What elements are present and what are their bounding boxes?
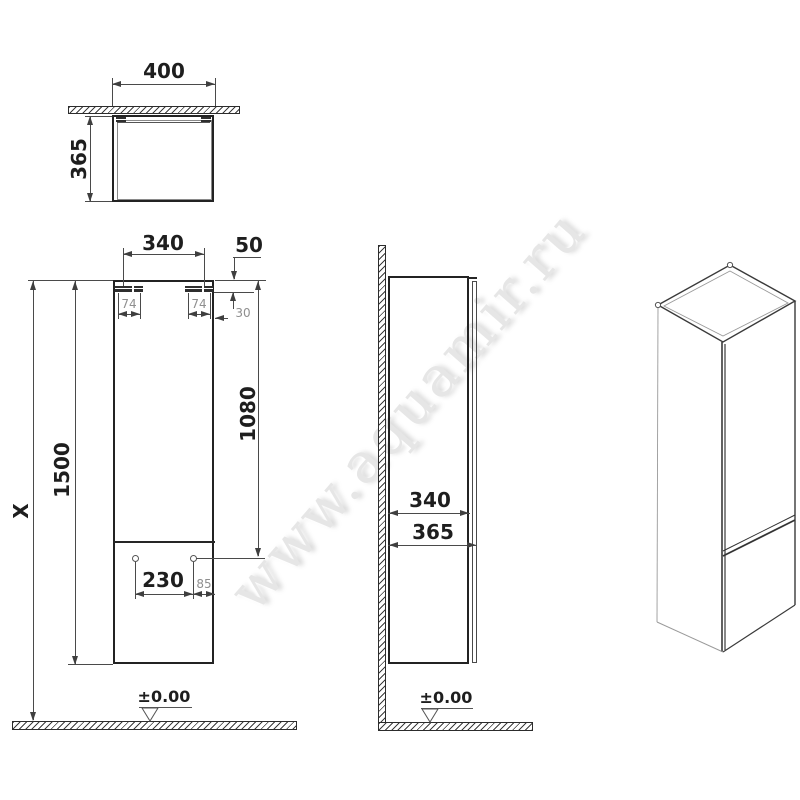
arrowhead [193, 591, 202, 597]
arrowhead [72, 281, 78, 290]
top-view-depth-label: 365 [69, 129, 89, 189]
door-divider [113, 541, 215, 543]
front-hanger-offset-label: 30 [223, 307, 263, 319]
door-panel [472, 281, 477, 663]
arrowhead [123, 251, 132, 257]
datum-triangle [141, 707, 159, 723]
dimension-line [112, 84, 215, 85]
cabinet-top-edge [467, 277, 477, 279]
extension-line [28, 280, 113, 281]
dimension-line [388, 545, 476, 546]
extension-line [215, 78, 216, 106]
arrowhead [87, 193, 93, 202]
arrowhead [184, 591, 193, 597]
arrowhead [467, 542, 476, 548]
arrowhead [188, 311, 197, 317]
arrowhead [30, 281, 36, 290]
front-holes-height-label: 1080 [238, 379, 258, 449]
mounting-bracket [185, 286, 202, 292]
technical-drawing: www.aquamir.ru 400 365 [0, 0, 800, 800]
iso-view [618, 248, 800, 668]
hanging-rail-line [117, 122, 210, 123]
extension-line [204, 248, 205, 286]
wall-hatch [68, 106, 240, 114]
arrowhead [131, 311, 140, 317]
arrowhead [389, 542, 398, 548]
cabinet-inner-line [117, 120, 212, 200]
drill-hole [132, 555, 139, 562]
side-floor-datum-label: ±0.00 [416, 690, 476, 706]
front-total-height-label: X [11, 491, 31, 531]
dimension-line [75, 281, 76, 664]
arrowhead [255, 281, 261, 290]
side-total-depth-label: 365 [403, 522, 463, 542]
arrowhead [206, 591, 215, 597]
front-floor-datum-label: ±0.00 [134, 689, 194, 705]
top-view-width-label: 400 [134, 61, 194, 81]
front-hanger-width-right-label: 74 [179, 298, 219, 310]
arrowhead [230, 292, 236, 301]
arrowhead [206, 81, 215, 87]
front-hanger-span-label: 340 [133, 233, 193, 253]
dimension-line [388, 513, 470, 514]
arrowhead [72, 656, 78, 665]
side-body-depth-label: 340 [400, 490, 460, 510]
front-hole-edge-label: 85 [184, 578, 224, 590]
leader-line [233, 257, 261, 258]
arrowhead [195, 251, 204, 257]
cabinet-outline [113, 280, 214, 664]
extension-line [196, 558, 265, 559]
arrowhead [87, 116, 93, 125]
cabinet-outline [388, 276, 469, 664]
arrowhead [389, 510, 398, 516]
floor-hatch [378, 722, 533, 731]
dimension-line [135, 594, 215, 595]
arrowhead [201, 311, 210, 317]
arrowhead [255, 548, 261, 557]
arrowhead [231, 271, 237, 280]
arrowhead [460, 510, 469, 516]
mounting-bracket [116, 117, 126, 122]
front-cabinet-height-label: 1500 [52, 435, 72, 505]
wall-hatch [378, 245, 386, 724]
datum-triangle [421, 708, 439, 724]
front-hanger-width-left-label: 74 [109, 298, 149, 310]
mounting-bracket [115, 286, 132, 292]
arrowhead [112, 81, 121, 87]
front-top-gap-label: 50 [219, 235, 279, 255]
mounting-bracket [204, 286, 213, 292]
mounting-bracket [134, 286, 143, 292]
mounting-bracket [201, 117, 211, 122]
arrowhead [118, 311, 127, 317]
arrowhead [30, 712, 36, 721]
dimension-line [33, 281, 34, 720]
